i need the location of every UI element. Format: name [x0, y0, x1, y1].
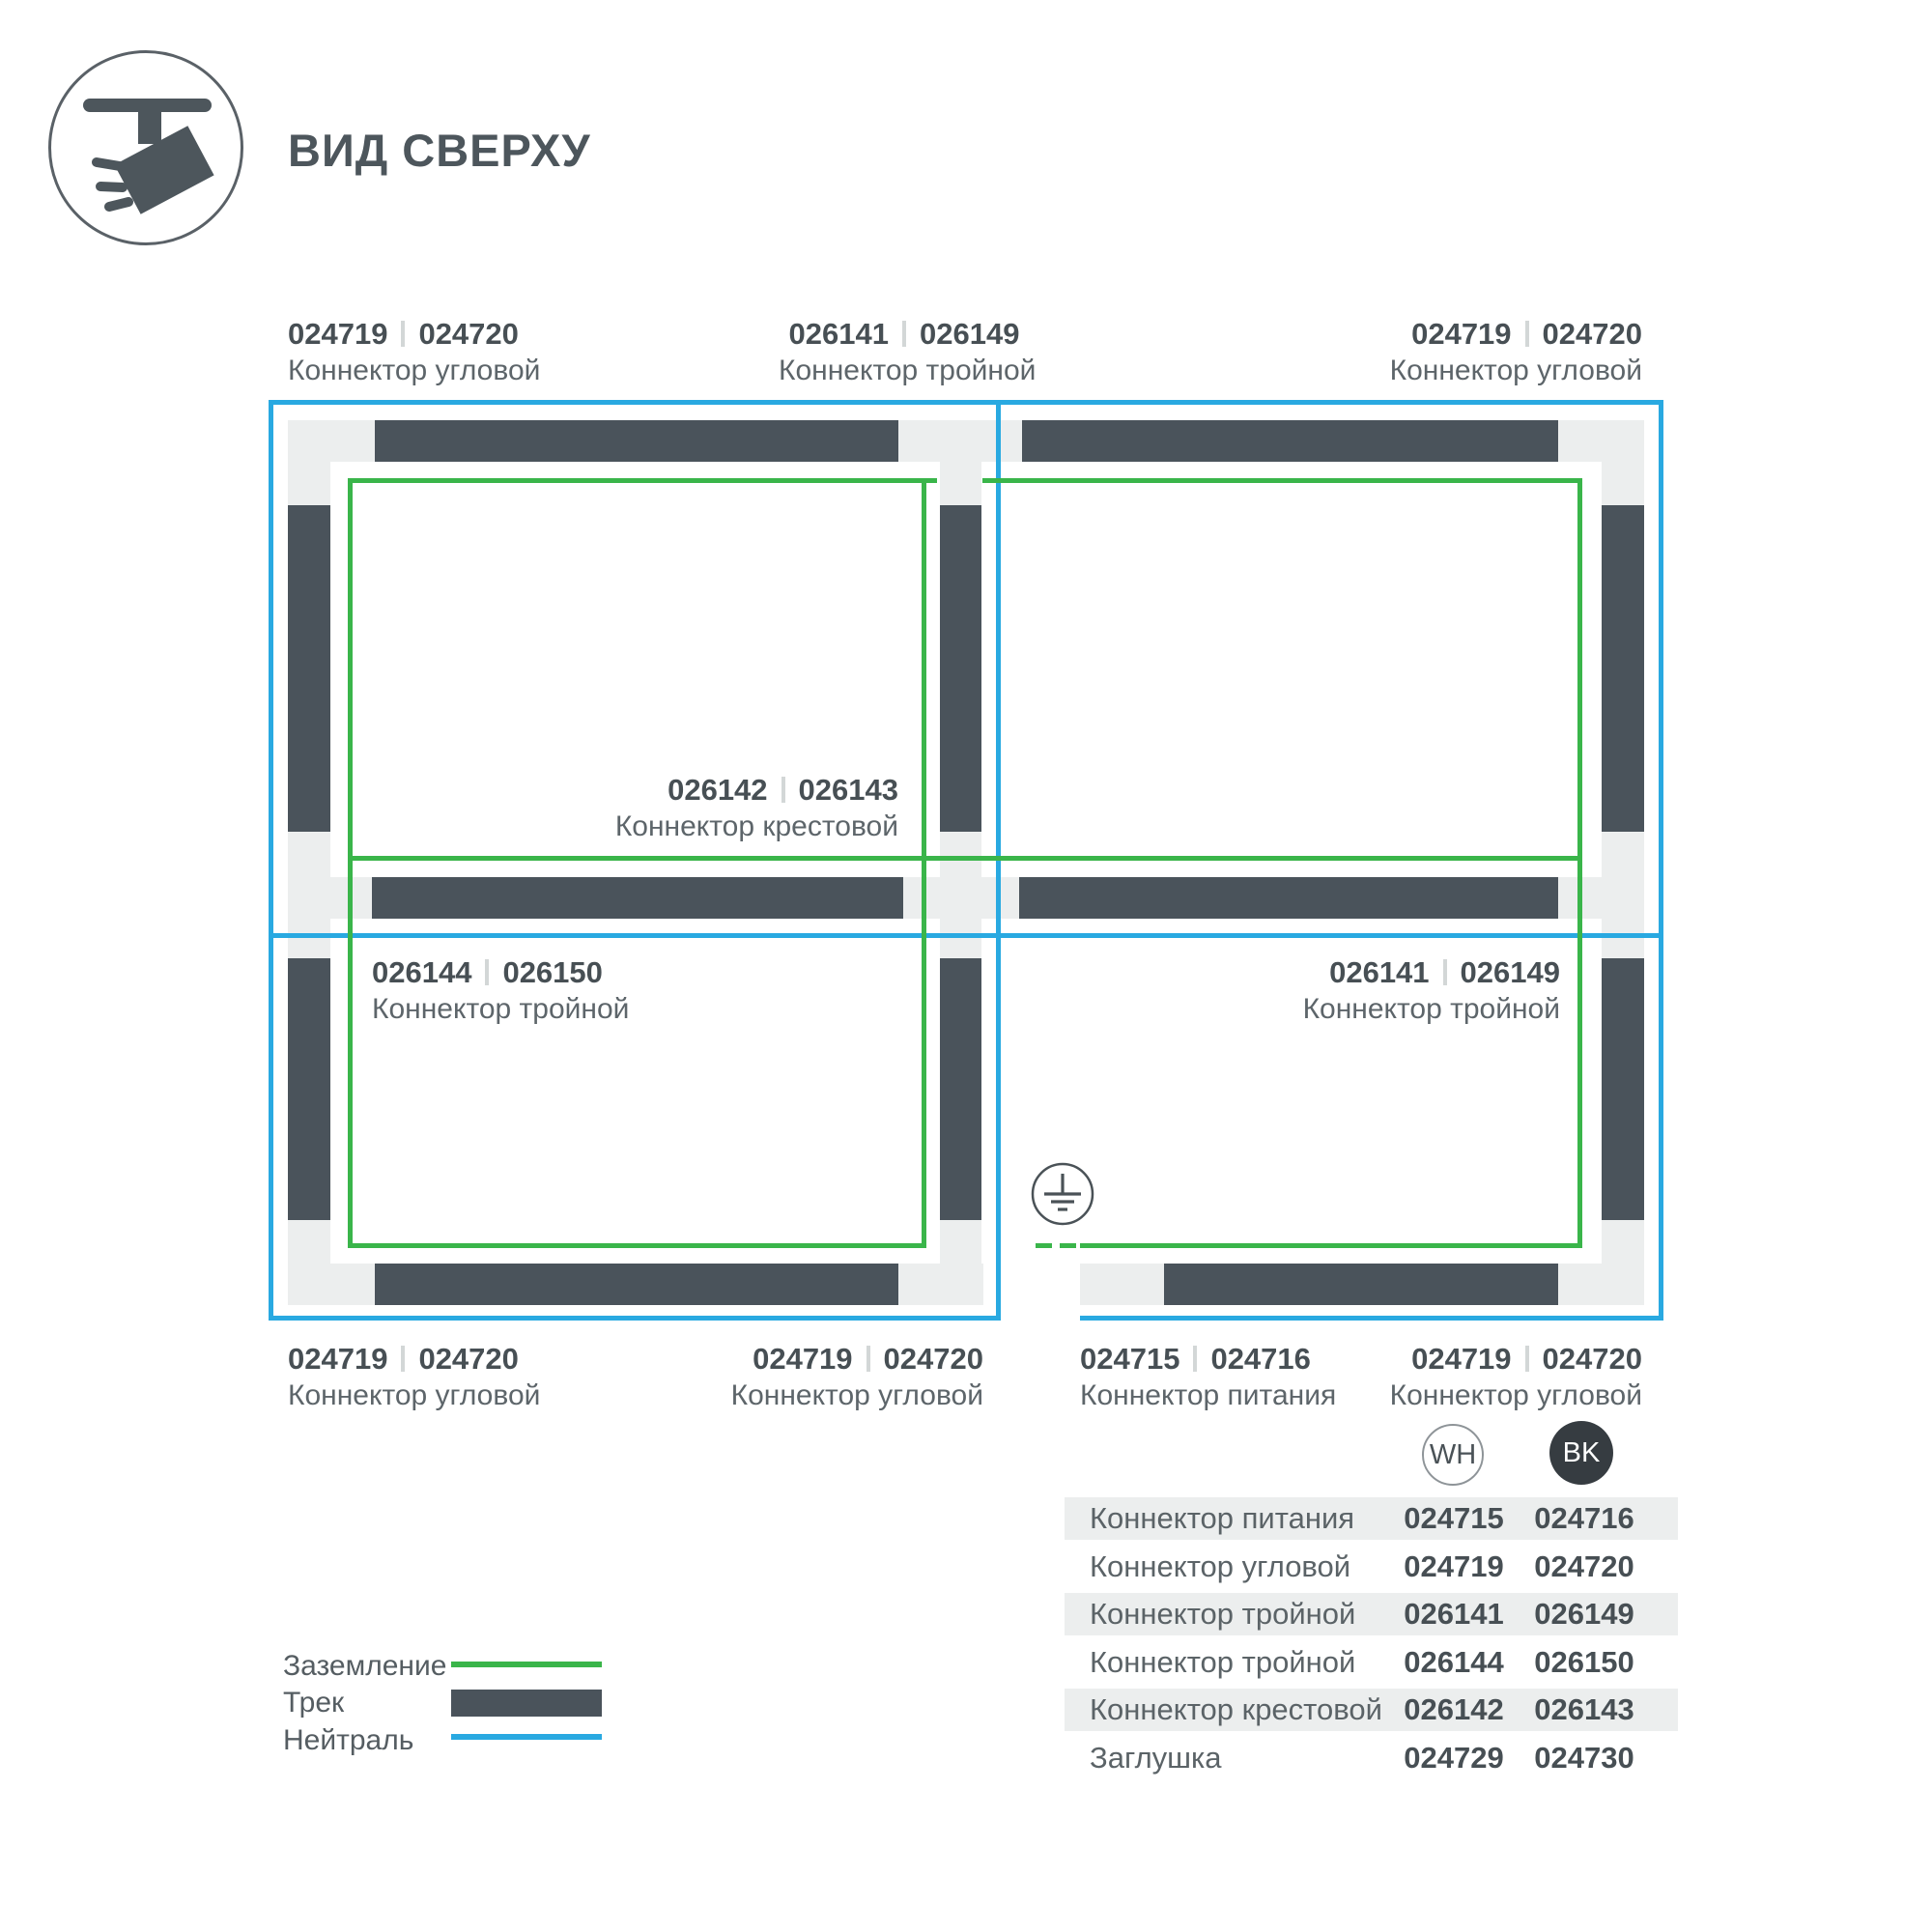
code-separator [902, 321, 906, 347]
t-connector-top-center [898, 420, 1022, 462]
neutral-line-left [269, 400, 273, 1321]
connector-name: Коннектор тройной [372, 991, 629, 1028]
table-row: Коннектор угловой 024719 024720 [1065, 1546, 1678, 1588]
column-header-white: WH [1422, 1424, 1484, 1486]
connector-name: Коннектор угловой [288, 1378, 540, 1414]
row-code-bk: 026150 [1526, 1641, 1642, 1684]
cross-connector-center [940, 832, 981, 958]
part-code-bk: 024720 [1543, 1342, 1642, 1376]
ground-line-dash [1060, 1243, 1076, 1248]
track-segment-bottom-right [1164, 1264, 1558, 1305]
connector-name: Коннектор питания [1080, 1378, 1336, 1414]
connector-name: Коннектор угловой [731, 1378, 983, 1414]
track-segment-center-upper [940, 505, 981, 832]
connector-name: Коннектор тройной [1303, 991, 1560, 1028]
label-corner-connector-bottom-left: 024719024720 Коннектор угловой [288, 1341, 540, 1414]
ground-line-dash [1036, 1243, 1052, 1248]
neutral-blue-line-swatch [451, 1734, 602, 1740]
part-code-bk: 024720 [418, 1342, 518, 1376]
table-row: Заглушка 024729 024730 [1065, 1737, 1678, 1779]
track-segment-middle-right [1019, 877, 1558, 919]
part-code-bk: 026143 [799, 773, 898, 807]
row-code-bk: 026143 [1526, 1689, 1642, 1731]
code-separator [1193, 1346, 1197, 1372]
earth-ground-icon [1030, 1161, 1095, 1227]
row-name: Коннектор тройной [1090, 1641, 1355, 1684]
corner-connector-bottom-right [1602, 1220, 1644, 1305]
column-label-wh: WH [1430, 1439, 1476, 1471]
track-segment-left-lower [288, 958, 330, 1220]
ground-line-top-right [982, 478, 1582, 483]
code-separator [401, 1346, 405, 1372]
code-separator [781, 777, 785, 803]
label-cross-connector-center: 026142026143 Коннектор крестовой [615, 772, 898, 845]
page: ВИД СВЕРХУ [0, 0, 1932, 1932]
neutral-line-bottom-right [1080, 1316, 1663, 1321]
legend-item-track: Трек [283, 1688, 344, 1719]
page-title: ВИД СВЕРХУ [288, 124, 591, 177]
label-t-connector-middle-right: 026141026149 Коннектор тройной [1303, 954, 1560, 1028]
connector-name: Коннектор угловой [1390, 1378, 1642, 1414]
neutral-line-right [1659, 400, 1663, 1321]
track-segment-top-left [375, 420, 898, 462]
label-power-connector: 024715024716 Коннектор питания [1080, 1341, 1336, 1414]
spotlight-glyph [51, 53, 241, 242]
connector-name: Коннектор тройной [779, 353, 1030, 389]
row-code-bk: 024716 [1526, 1497, 1642, 1540]
column-header-black: BK [1549, 1421, 1613, 1485]
part-code-wh: 024719 [288, 317, 387, 351]
label-t-connector-top-center: 026141026149 Коннектор тройной [779, 316, 1030, 389]
neutral-line-middle [269, 933, 1663, 938]
ground-line-bottom-left [348, 1243, 926, 1248]
code-separator [1443, 959, 1447, 985]
row-code-bk: 026149 [1526, 1593, 1642, 1635]
label-corner-connector-bottom-center: 024719024720 Коннектор угловой [731, 1341, 983, 1414]
row-code-wh: 024715 [1396, 1497, 1512, 1540]
track-spotlight-icon [48, 50, 243, 245]
ground-line-bottom-right [1080, 1243, 1582, 1248]
row-code-wh: 024719 [1396, 1546, 1512, 1588]
legend-item-ground: Заземление [283, 1651, 446, 1682]
code-separator [1525, 1346, 1529, 1372]
track-segment-bottom-left [375, 1264, 898, 1305]
row-name: Коннектор питания [1090, 1497, 1354, 1540]
column-label-bk: BK [1563, 1437, 1601, 1469]
row-name: Заглушка [1090, 1737, 1222, 1779]
corner-connector-top-left [288, 420, 330, 505]
part-code-wh: 026141 [789, 317, 889, 351]
t-connector-middle-right [1602, 832, 1644, 958]
row-code-wh: 024729 [1396, 1737, 1512, 1779]
part-code-wh: 026144 [372, 955, 471, 989]
connector-name: Коннектор угловой [288, 353, 540, 389]
part-code-bk: 024716 [1210, 1342, 1310, 1376]
corner-connector-top-right [1602, 420, 1644, 505]
part-code-wh: 026141 [1329, 955, 1429, 989]
table-row: Коннектор тройной 026144 026150 [1065, 1641, 1678, 1684]
t-connector-middle-left [288, 832, 330, 958]
ground-line-top-left [348, 478, 937, 483]
part-code-bk: 024720 [1543, 317, 1642, 351]
table-row: Коннектор тройной 026141 026149 [1065, 1593, 1678, 1635]
part-code-wh: 024719 [1411, 1342, 1511, 1376]
connector-name: Коннектор угловой [1390, 353, 1642, 389]
row-name: Коннектор тройной [1090, 1593, 1355, 1635]
neutral-line-bottom-left [269, 1316, 1001, 1321]
part-code-bk: 024720 [884, 1342, 983, 1376]
code-separator [401, 321, 405, 347]
ground-green-line-swatch [451, 1662, 602, 1667]
code-separator [1525, 321, 1529, 347]
part-code-wh: 024719 [1411, 317, 1511, 351]
track-dark-bar-swatch [451, 1690, 602, 1717]
part-code-bk: 026149 [1461, 955, 1560, 989]
track-segment-left-upper [288, 505, 330, 832]
label-t-connector-middle-left: 026144026150 Коннектор тройной [372, 954, 629, 1028]
table-row: Коннектор питания 024715 024716 [1065, 1497, 1678, 1540]
row-code-bk: 024720 [1526, 1546, 1642, 1588]
part-code-bk: 026149 [920, 317, 1019, 351]
corner-connector-bottom-center [940, 1220, 981, 1264]
track-segment-center-lower [940, 958, 981, 1220]
track-segment-top-right [1022, 420, 1558, 462]
code-separator [867, 1346, 870, 1372]
part-code-wh: 024719 [753, 1342, 852, 1376]
corner-connector-bottom-center [898, 1264, 983, 1305]
track-segment-middle-left [372, 877, 903, 919]
row-name: Коннектор угловой [1090, 1546, 1350, 1588]
label-corner-connector-top-right: 024719024720 Коннектор угловой [1390, 316, 1642, 389]
neutral-line-top [269, 400, 1663, 405]
ground-line-center [922, 478, 926, 1248]
part-code-wh: 026142 [668, 773, 767, 807]
row-code-wh: 026142 [1396, 1689, 1512, 1731]
corner-connector-bottom-left [288, 1220, 330, 1305]
table-row: Коннектор крестовой 026142 026143 [1065, 1689, 1678, 1731]
t-connector-top-center [940, 462, 981, 505]
ground-line-right [1577, 478, 1582, 1248]
code-separator [485, 959, 489, 985]
legend-item-neutral: Нейтраль [283, 1725, 413, 1756]
power-connector-block [1080, 1264, 1164, 1305]
label-corner-connector-bottom-right: 024719024720 Коннектор угловой [1390, 1341, 1642, 1414]
row-name: Коннектор крестовой [1090, 1689, 1382, 1731]
ground-line-middle [348, 856, 1582, 861]
row-code-bk: 024730 [1526, 1737, 1642, 1779]
part-code-wh: 024719 [288, 1342, 387, 1376]
row-code-wh: 026141 [1396, 1593, 1512, 1635]
part-code-wh: 024715 [1080, 1342, 1179, 1376]
ground-line-left [348, 478, 353, 1248]
part-code-bk: 026150 [502, 955, 602, 989]
label-corner-connector-top-left: 024719024720 Коннектор угловой [288, 316, 540, 389]
connector-name: Коннектор крестовой [615, 809, 898, 845]
track-segment-right-lower [1602, 958, 1644, 1220]
part-code-bk: 024720 [418, 317, 518, 351]
row-code-wh: 026144 [1396, 1641, 1512, 1684]
track-segment-right-upper [1602, 505, 1644, 832]
